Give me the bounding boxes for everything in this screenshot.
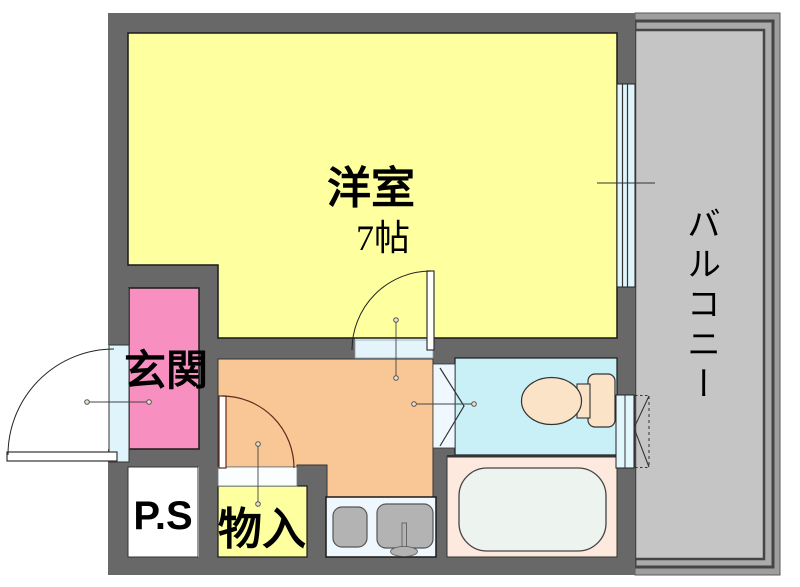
toilet-tank [588,374,615,427]
leader-dot [472,402,477,407]
wall-left-upper [108,33,128,345]
western-door-opening [355,340,433,358]
washroom-bathroom-divider [447,455,617,458]
bathtub-icon [459,468,606,551]
wall-bifold-stub-top [433,358,455,364]
stove-icon [333,507,367,547]
wall-storage-right [307,486,327,557]
floor-plan: 洋室 7帖 玄関 P.S 物入 バルコニー [0,0,800,587]
entrance-door [7,349,117,461]
wall-under-western-right [433,338,617,358]
wall-right-c [617,468,635,575]
toilet-icon [522,374,616,427]
western-window-frame [617,84,635,287]
leader-dot [85,400,90,405]
balcony-label: バルコニー [682,206,719,406]
leader-dot [256,442,261,447]
pipe-space-label: P.S [133,494,192,538]
bifold-door-frame [433,364,455,448]
entrance-label: 玄関 [124,347,208,394]
toilet-bowl [522,378,582,425]
storage-door-leaf [219,396,226,468]
western-room-label: 洋室 [327,163,415,213]
wall-top [108,13,635,33]
leader-dot [394,318,399,323]
floor-plan-canvas: 洋室 7帖 玄関 P.S 物入 バルコニー [0,0,800,587]
wall-under-western-left [218,338,355,359]
kitchen-sink-icon [326,497,436,557]
leader-dot [412,402,417,407]
western-door-leaf [427,271,434,350]
faucet-base [391,547,418,557]
entrance-door-leaf [7,452,117,461]
western-room-size: 7帖 [356,218,410,258]
leader-dot [147,400,152,405]
storage-door-opening [218,467,297,486]
wall-right-a [617,33,635,84]
wall-storage-stub [297,465,327,486]
leader-dot [394,376,399,381]
wall-entrance-top [108,265,218,288]
wall-right-b [617,287,635,395]
wall-bottom [108,557,635,575]
storage-label: 物入 [218,505,306,554]
wall-mid-vertical [199,288,218,557]
